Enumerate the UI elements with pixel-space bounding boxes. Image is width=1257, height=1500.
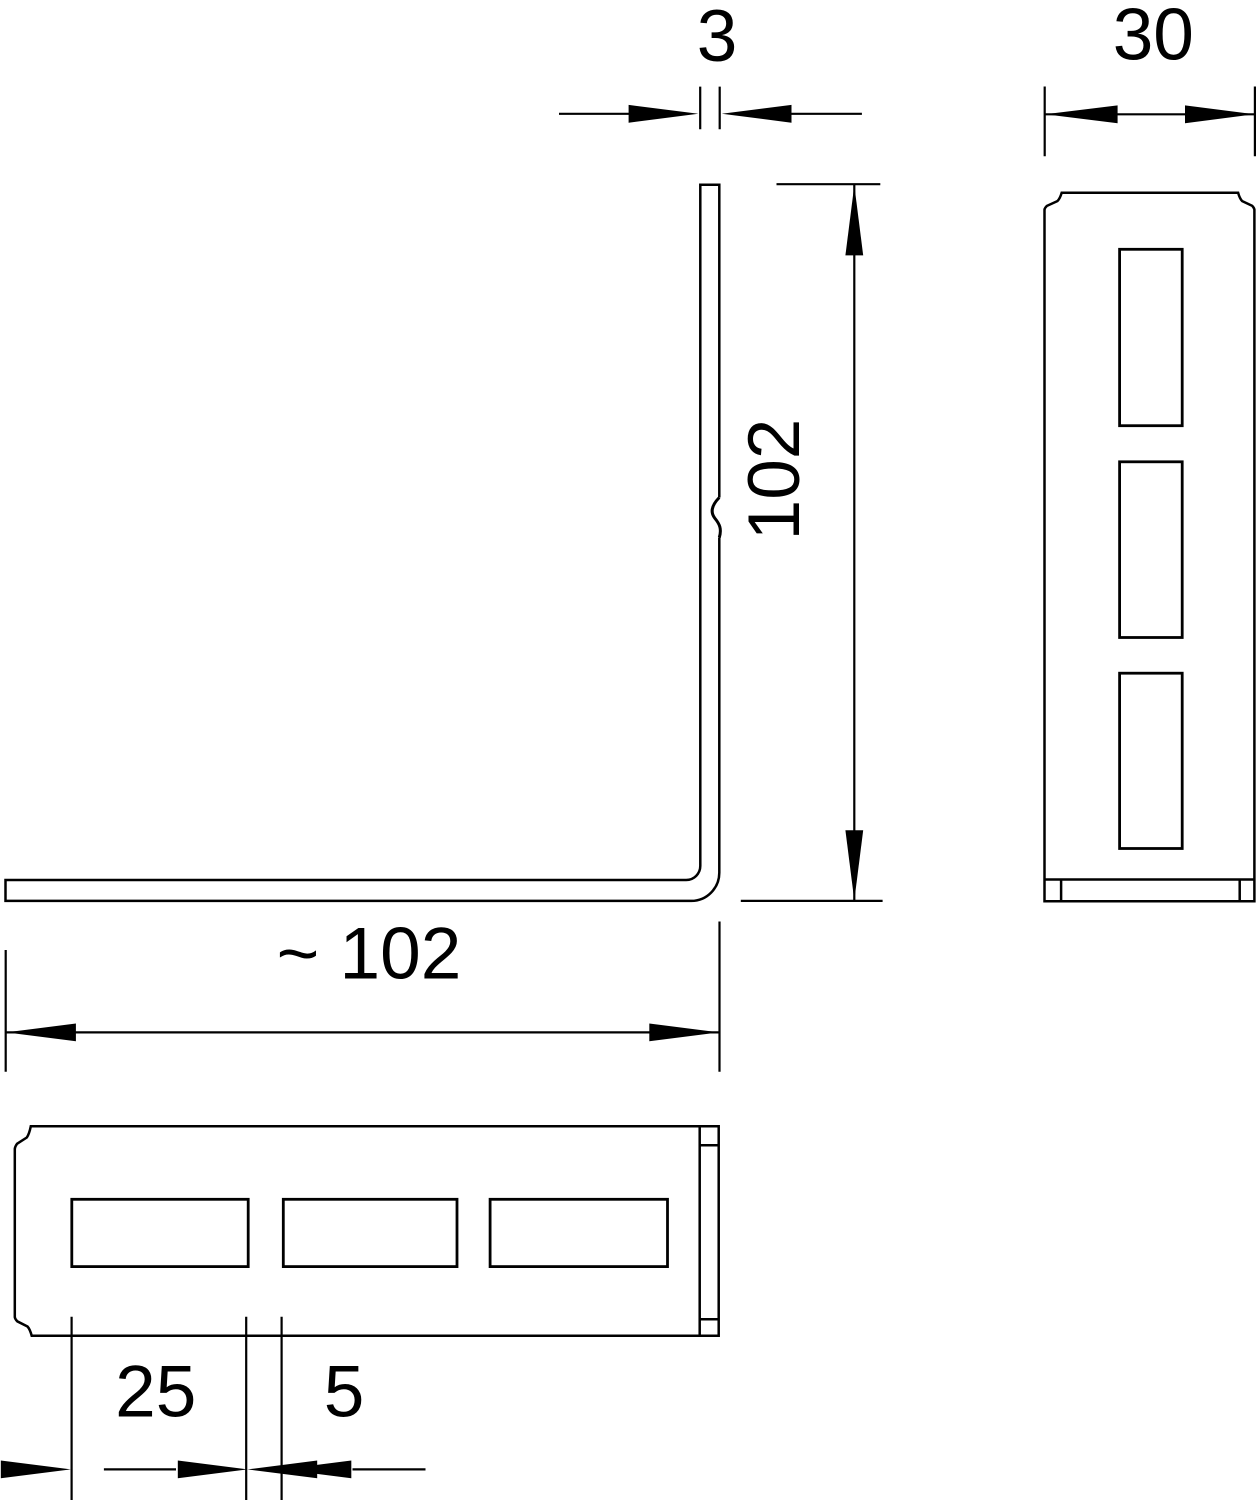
svg-text:30: 30 xyxy=(1113,0,1194,76)
svg-text:3: 3 xyxy=(697,0,738,77)
svg-text:5: 5 xyxy=(324,1351,365,1432)
svg-text:25: 25 xyxy=(115,1351,196,1432)
svg-text:~ 102: ~ 102 xyxy=(277,913,462,994)
svg-text:102: 102 xyxy=(734,419,815,541)
